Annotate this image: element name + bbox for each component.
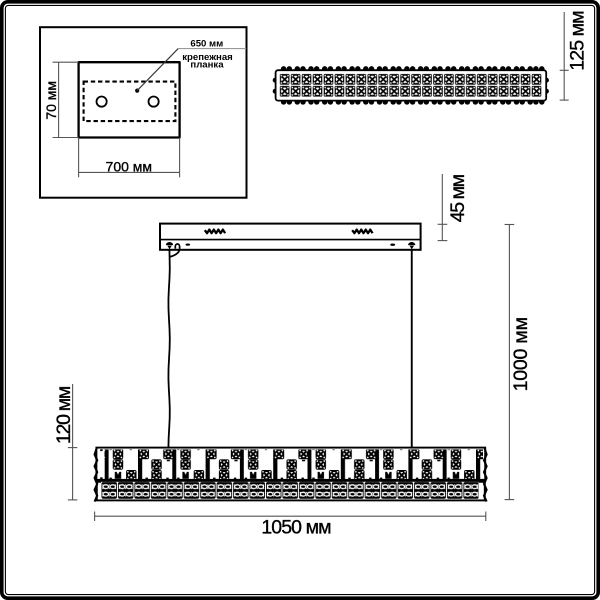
svg-text:планка: планка	[190, 60, 224, 71]
svg-text:125 мм: 125 мм	[567, 11, 589, 71]
svg-text:650 мм: 650 мм	[190, 38, 223, 49]
svg-text:120 мм: 120 мм	[53, 386, 75, 444]
svg-text:1050 мм: 1050 мм	[261, 516, 331, 538]
svg-text:700 мм: 700 мм	[106, 158, 153, 174]
svg-text:45 мм: 45 мм	[447, 174, 469, 222]
svg-text:1000 мм: 1000 мм	[510, 317, 532, 391]
svg-text:70 мм: 70 мм	[43, 81, 59, 120]
